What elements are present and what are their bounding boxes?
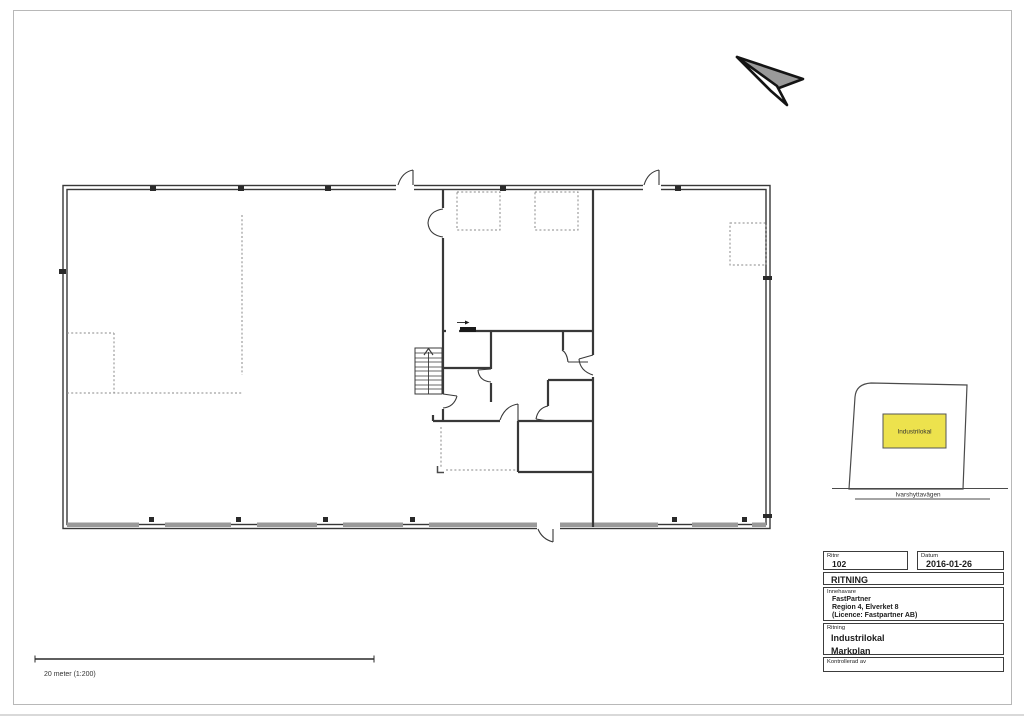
kontrollerad-box: Kontrollerad av — [823, 657, 1004, 672]
site-map: Industrilokal Ivarshyttavägen — [832, 383, 1008, 499]
dashed-outlines — [67, 192, 766, 470]
outer-walls — [63, 186, 770, 529]
corner-mark — [438, 466, 445, 473]
stairs-icon — [415, 348, 442, 394]
ritning-header: RITNING — [824, 573, 1003, 585]
ritnr-value: 102 — [824, 560, 907, 569]
door-openings — [396, 181, 661, 530]
ritning-header-box: RITNING — [823, 572, 1004, 585]
floor-plan — [59, 170, 772, 542]
innehavare-line-2: Region 4, Elverket 8 — [824, 604, 1003, 612]
innehavare-label: Innehavare — [824, 588, 1003, 596]
interior-walls — [433, 190, 593, 527]
innehavare-line-1: FastPartner — [824, 596, 1003, 604]
ritning-title: Industrilokal — [824, 634, 1003, 644]
ritnr-box: Ritnr 102 — [823, 551, 908, 570]
datum-box: Datum 2016-01-26 — [917, 551, 1004, 570]
ritning-label: Ritning — [824, 624, 1003, 632]
scale-bar: 20 meter (1:200) — [35, 656, 374, 679]
ritning-subtitle: Markplan — [824, 647, 1003, 655]
building-label: Industrilokal — [897, 429, 931, 436]
slide-direction-arrow-icon — [457, 321, 470, 325]
drawing-sheet: Industrilokal Ivarshyttavägen 20 meter (… — [0, 0, 1024, 724]
innehavare-box: Innehavare FastPartner Region 4, Elverke… — [823, 587, 1004, 621]
scale-label: 20 meter (1:200) — [44, 671, 96, 678]
scan-artifact-line — [0, 714, 1024, 716]
street-label: Ivarshyttavägen — [895, 492, 941, 499]
datum-value: 2016-01-26 — [918, 560, 1003, 569]
north-arrow-icon — [737, 57, 803, 105]
ritning-box: Ritning Industrilokal Markplan — [823, 623, 1004, 655]
kontrollerad-label: Kontrollerad av — [824, 658, 1003, 666]
innehavare-line-3: (Licence: Fastpartner AB) — [824, 612, 1003, 620]
door-swings — [398, 170, 659, 542]
